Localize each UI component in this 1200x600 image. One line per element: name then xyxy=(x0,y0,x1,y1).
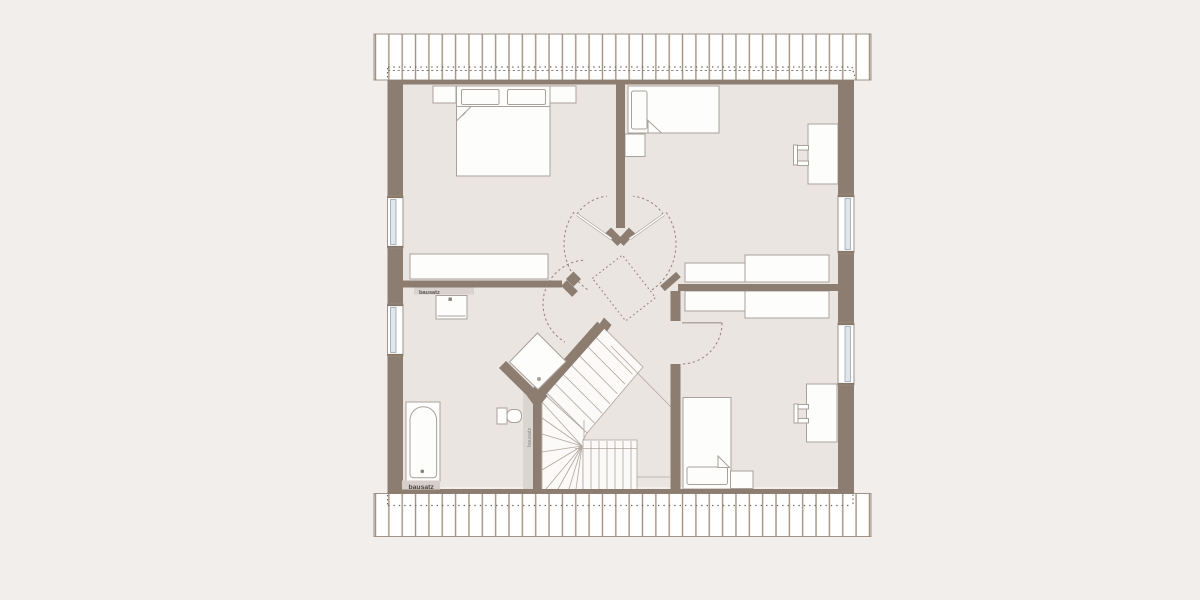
svg-text:bausatz: bausatz xyxy=(527,427,533,447)
svg-text:bausatz: bausatz xyxy=(419,290,440,296)
svg-text:bausatz: bausatz xyxy=(409,484,435,491)
